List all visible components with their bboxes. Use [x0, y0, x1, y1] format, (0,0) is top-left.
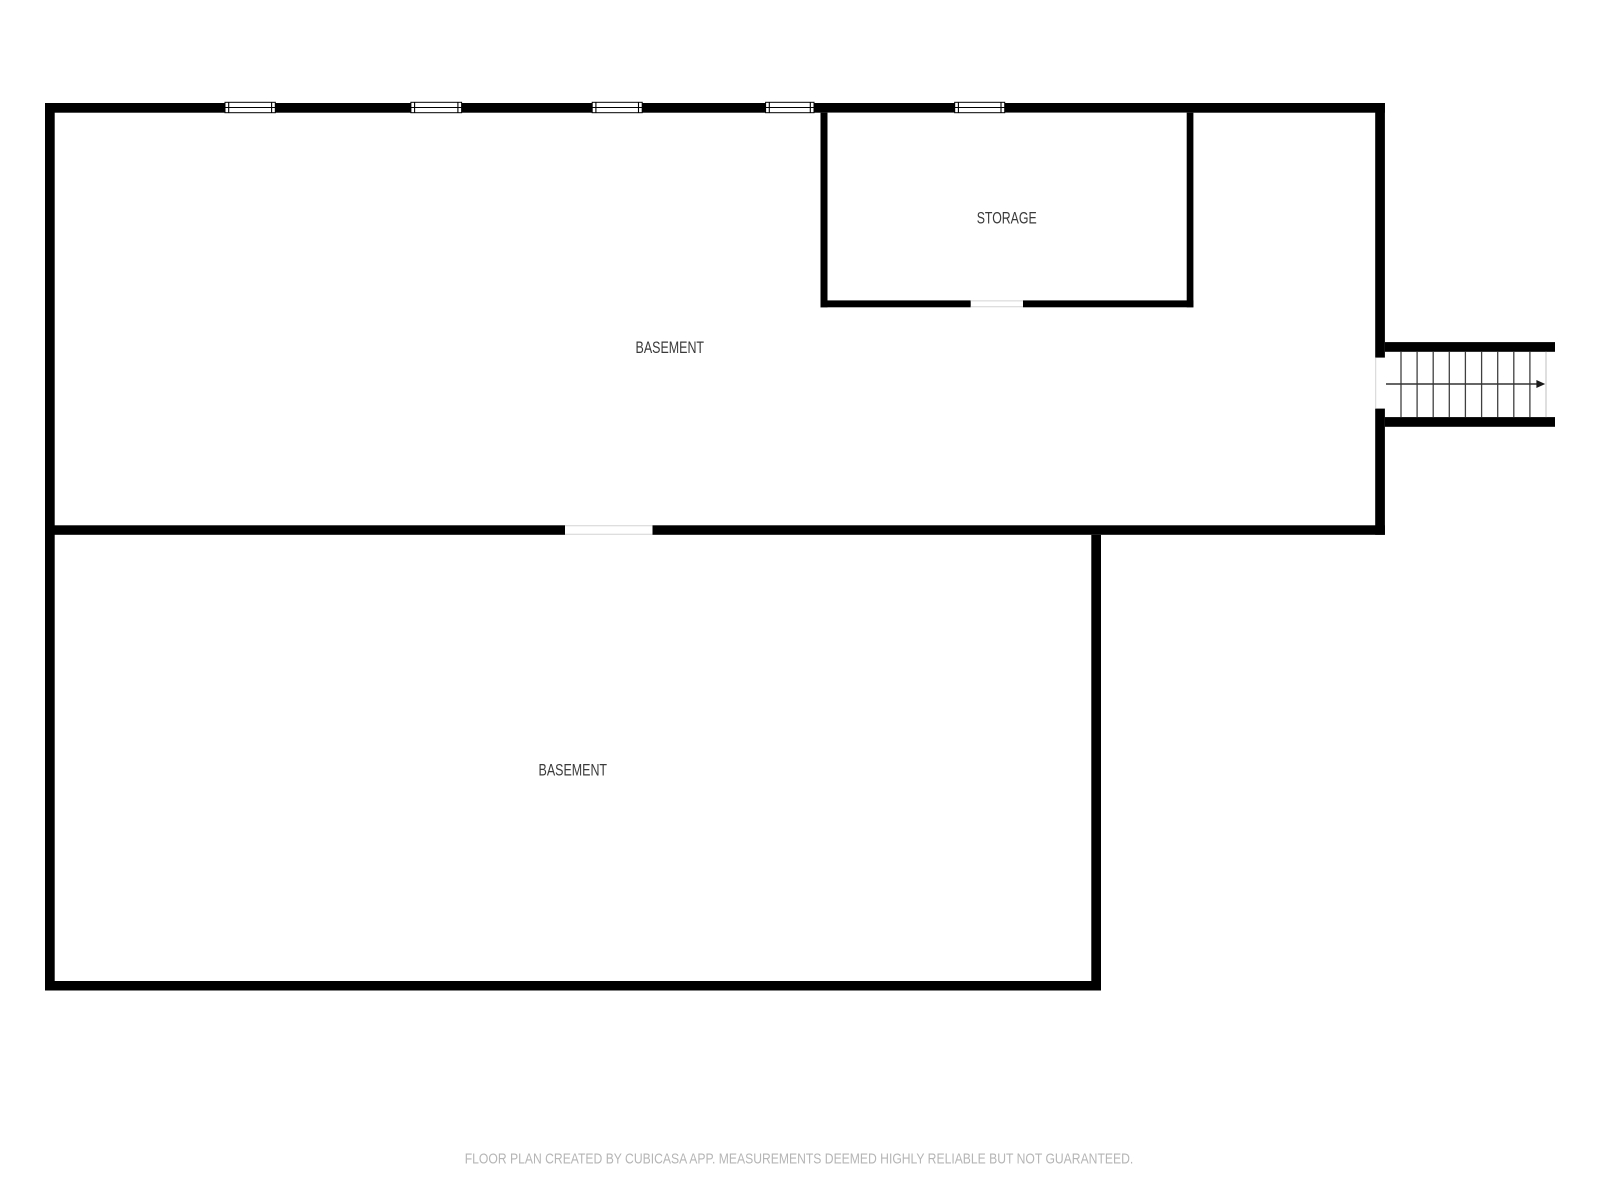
svg-text:BASEMENT: BASEMENT	[539, 761, 608, 779]
svg-text:FLOOR PLAN CREATED BY CUBICASA: FLOOR PLAN CREATED BY CUBICASA APP. MEAS…	[465, 1151, 1134, 1168]
svg-text:STORAGE: STORAGE	[977, 209, 1037, 227]
svg-text:BASEMENT: BASEMENT	[636, 339, 705, 357]
